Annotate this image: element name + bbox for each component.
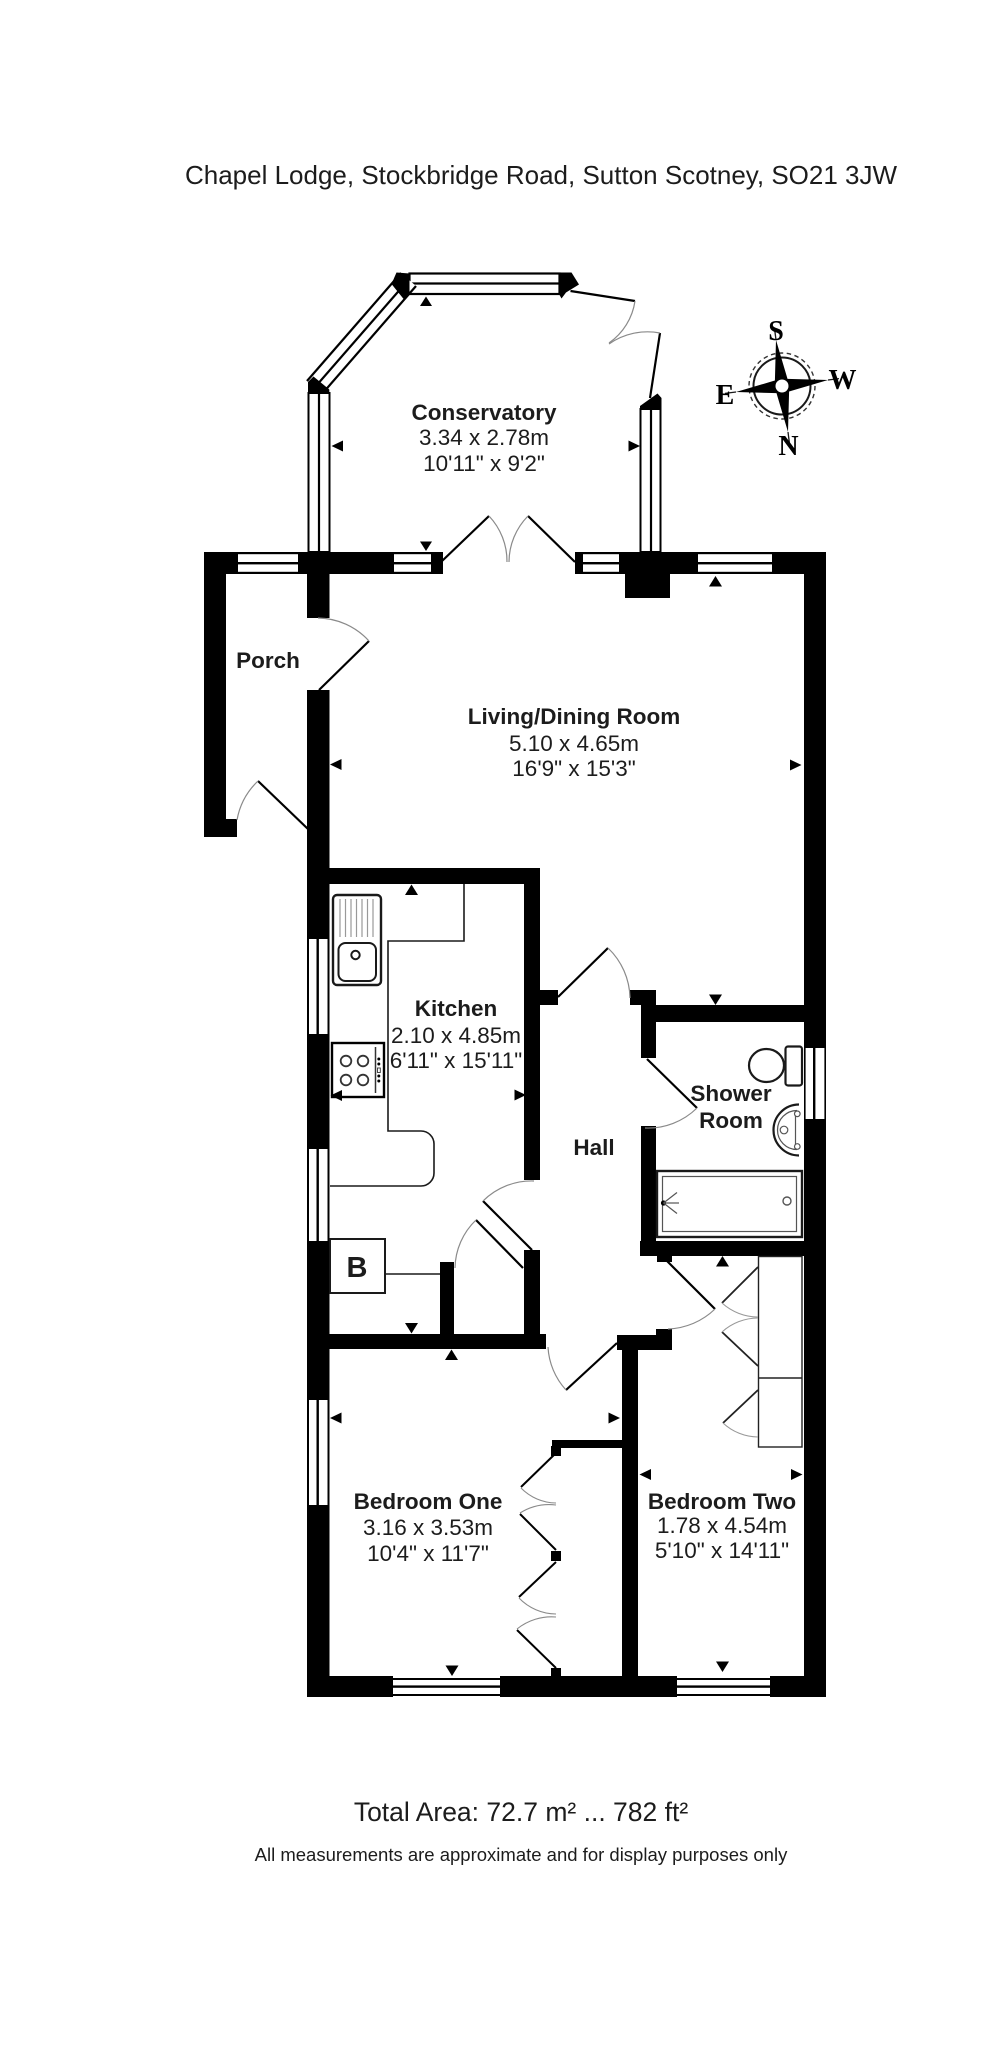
svg-text:All measurements are approxima: All measurements are approximate and for… (255, 1844, 788, 1865)
svg-text:E: E (716, 380, 735, 411)
svg-text:W: W (829, 365, 857, 396)
svg-text:S: S (768, 316, 784, 347)
svg-text:16'9" x 15'3": 16'9" x 15'3" (512, 756, 635, 781)
svg-text:1.78 x 4.54m: 1.78 x 4.54m (657, 1513, 787, 1538)
svg-text:5'10" x 14'11": 5'10" x 14'11" (655, 1538, 789, 1563)
svg-text:Bedroom Two: Bedroom Two (648, 1489, 796, 1514)
svg-text:Kitchen: Kitchen (415, 996, 498, 1021)
svg-text:3.34 x 2.78m: 3.34 x 2.78m (419, 425, 549, 450)
svg-text:3.16 x 3.53m: 3.16 x 3.53m (363, 1515, 493, 1540)
svg-text:Total Area: 72.7 m² ... 782 ft: Total Area: 72.7 m² ... 782 ft² (354, 1797, 689, 1827)
svg-text:5.10 x 4.65m: 5.10 x 4.65m (509, 731, 639, 756)
svg-text:Bedroom One: Bedroom One (354, 1489, 503, 1514)
svg-text:N: N (778, 431, 798, 462)
svg-text:6'11" x 15'11": 6'11" x 15'11" (390, 1048, 523, 1073)
svg-text:Chapel Lodge, Stockbridge Road: Chapel Lodge, Stockbridge Road, Sutton S… (185, 160, 898, 190)
svg-text:2.10 x 4.85m: 2.10 x 4.85m (391, 1023, 521, 1048)
svg-text:10'11" x 9'2": 10'11" x 9'2" (423, 451, 545, 476)
svg-text:10'4" x 11'7": 10'4" x 11'7" (367, 1541, 489, 1566)
svg-text:Room: Room (699, 1108, 763, 1133)
svg-text:Conservatory: Conservatory (411, 400, 557, 425)
svg-text:Shower: Shower (690, 1081, 772, 1106)
svg-text:B: B (347, 1252, 368, 1284)
svg-text:Hall: Hall (573, 1135, 614, 1160)
svg-text:Living/Dining Room: Living/Dining Room (468, 704, 680, 729)
svg-text:Porch: Porch (236, 648, 300, 673)
